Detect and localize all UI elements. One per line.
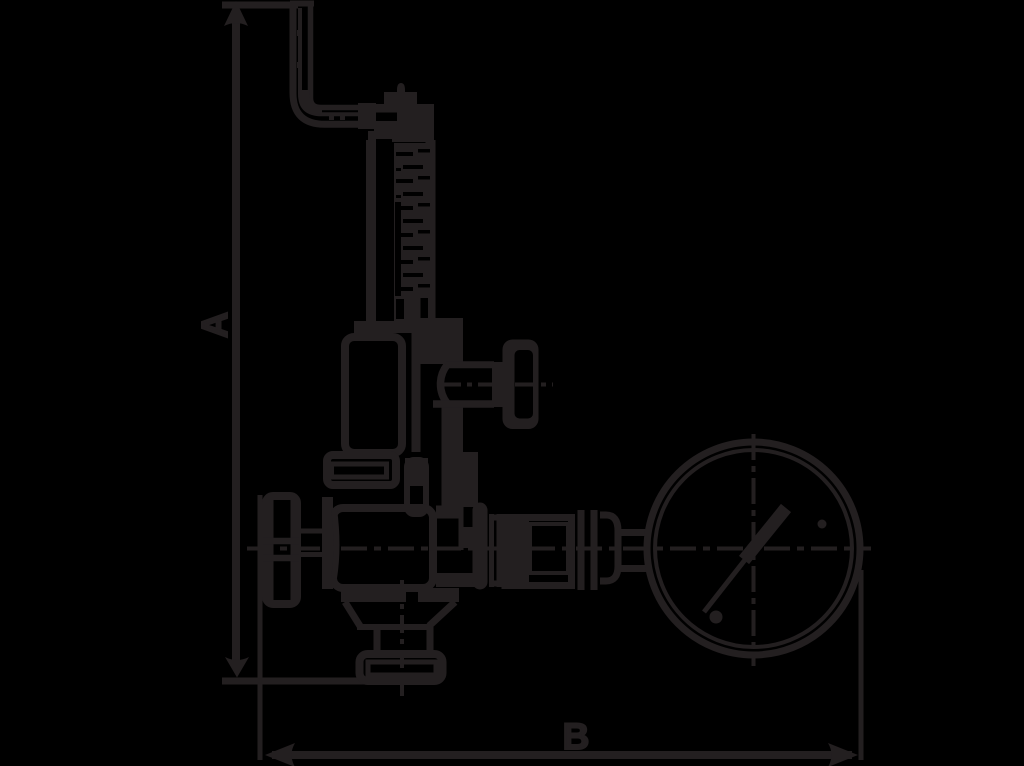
svg-text:B: B bbox=[563, 716, 590, 757]
svg-text:A: A bbox=[194, 312, 235, 338]
